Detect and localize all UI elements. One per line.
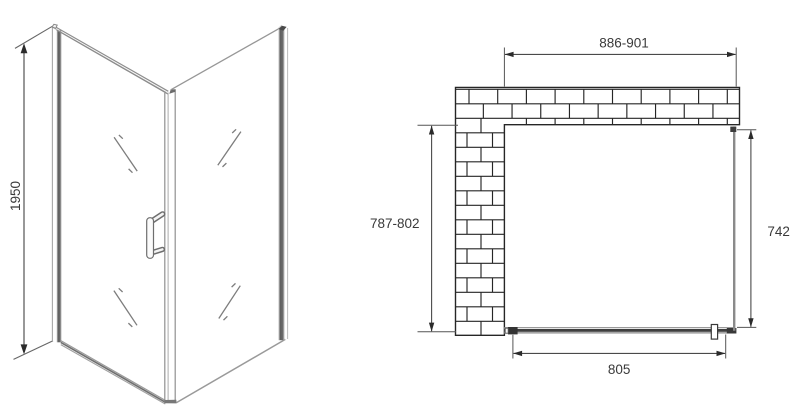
svg-text:886-901: 886-901 <box>599 36 649 51</box>
svg-text:742: 742 <box>767 224 790 239</box>
svg-text:787-802: 787-802 <box>370 216 420 231</box>
svg-text:1950: 1950 <box>8 181 23 211</box>
svg-text:805: 805 <box>608 362 631 377</box>
